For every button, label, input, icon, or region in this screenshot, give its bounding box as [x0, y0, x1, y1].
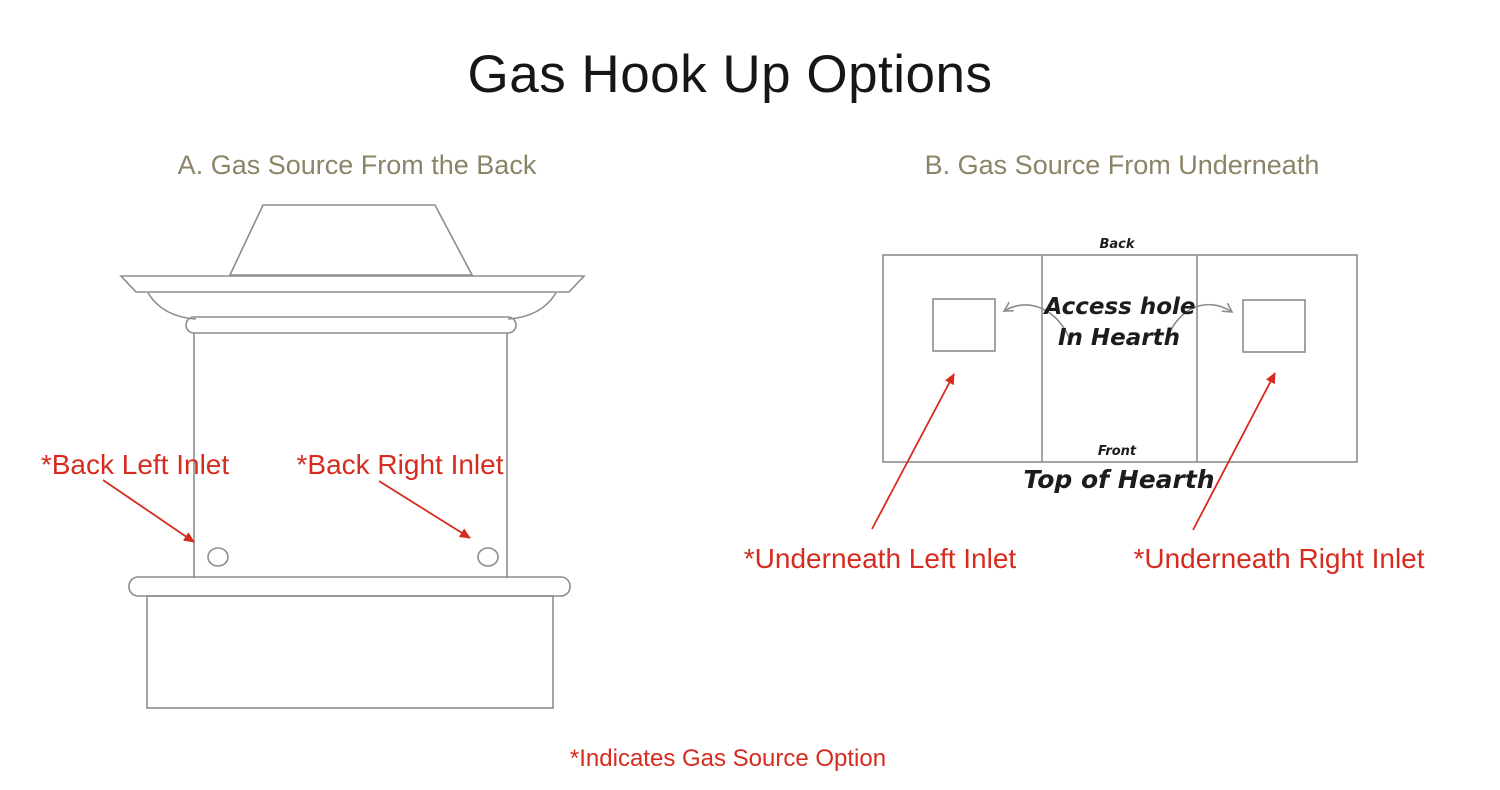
underneath-right-inlet-arrow	[1193, 373, 1275, 530]
right-access-hole	[1243, 300, 1305, 352]
diagram-linework	[0, 0, 1500, 790]
mantel-shelf	[121, 276, 584, 292]
left-access-hole	[933, 299, 995, 351]
back-right-inlet-hole	[478, 548, 498, 566]
right-corbel-curve	[508, 293, 556, 319]
access-hole-label-line2: In Hearth	[1058, 325, 1180, 351]
hearth-front-label: Front	[1098, 444, 1136, 459]
underneath-left-inlet-label: *Underneath Left Inlet	[744, 543, 1016, 575]
section-a-arrows	[103, 480, 470, 542]
back-right-inlet-arrow	[379, 481, 470, 538]
section-b-arrows	[872, 373, 1275, 530]
back-left-inlet-arrow	[103, 480, 194, 542]
torus-molding	[186, 317, 516, 333]
hearth-top-diagram	[883, 255, 1357, 462]
chimney-cap-trapezoid	[230, 205, 472, 275]
top-of-hearth-caption: Top of Hearth	[1023, 465, 1214, 494]
back-left-inlet-label: *Back Left Inlet	[41, 449, 229, 481]
underneath-left-inlet-arrow	[872, 374, 954, 529]
underneath-right-inlet-label: *Underneath Right Inlet	[1133, 543, 1424, 575]
page: { "title": "Gas Hook Up Options", "footn…	[0, 0, 1500, 790]
access-hole-label-line1: Access hole	[1044, 294, 1195, 320]
base-molding	[129, 577, 570, 596]
back-left-inlet-hole	[208, 548, 228, 566]
hearth-top-outline	[883, 255, 1357, 462]
gas-source-footnote: *Indicates Gas Source Option	[570, 745, 886, 773]
back-right-inlet-label: *Back Right Inlet	[297, 449, 504, 481]
hearth-back-label: Back	[1099, 237, 1134, 252]
hearth-base-box	[147, 596, 553, 708]
left-corbel-curve	[148, 293, 196, 319]
